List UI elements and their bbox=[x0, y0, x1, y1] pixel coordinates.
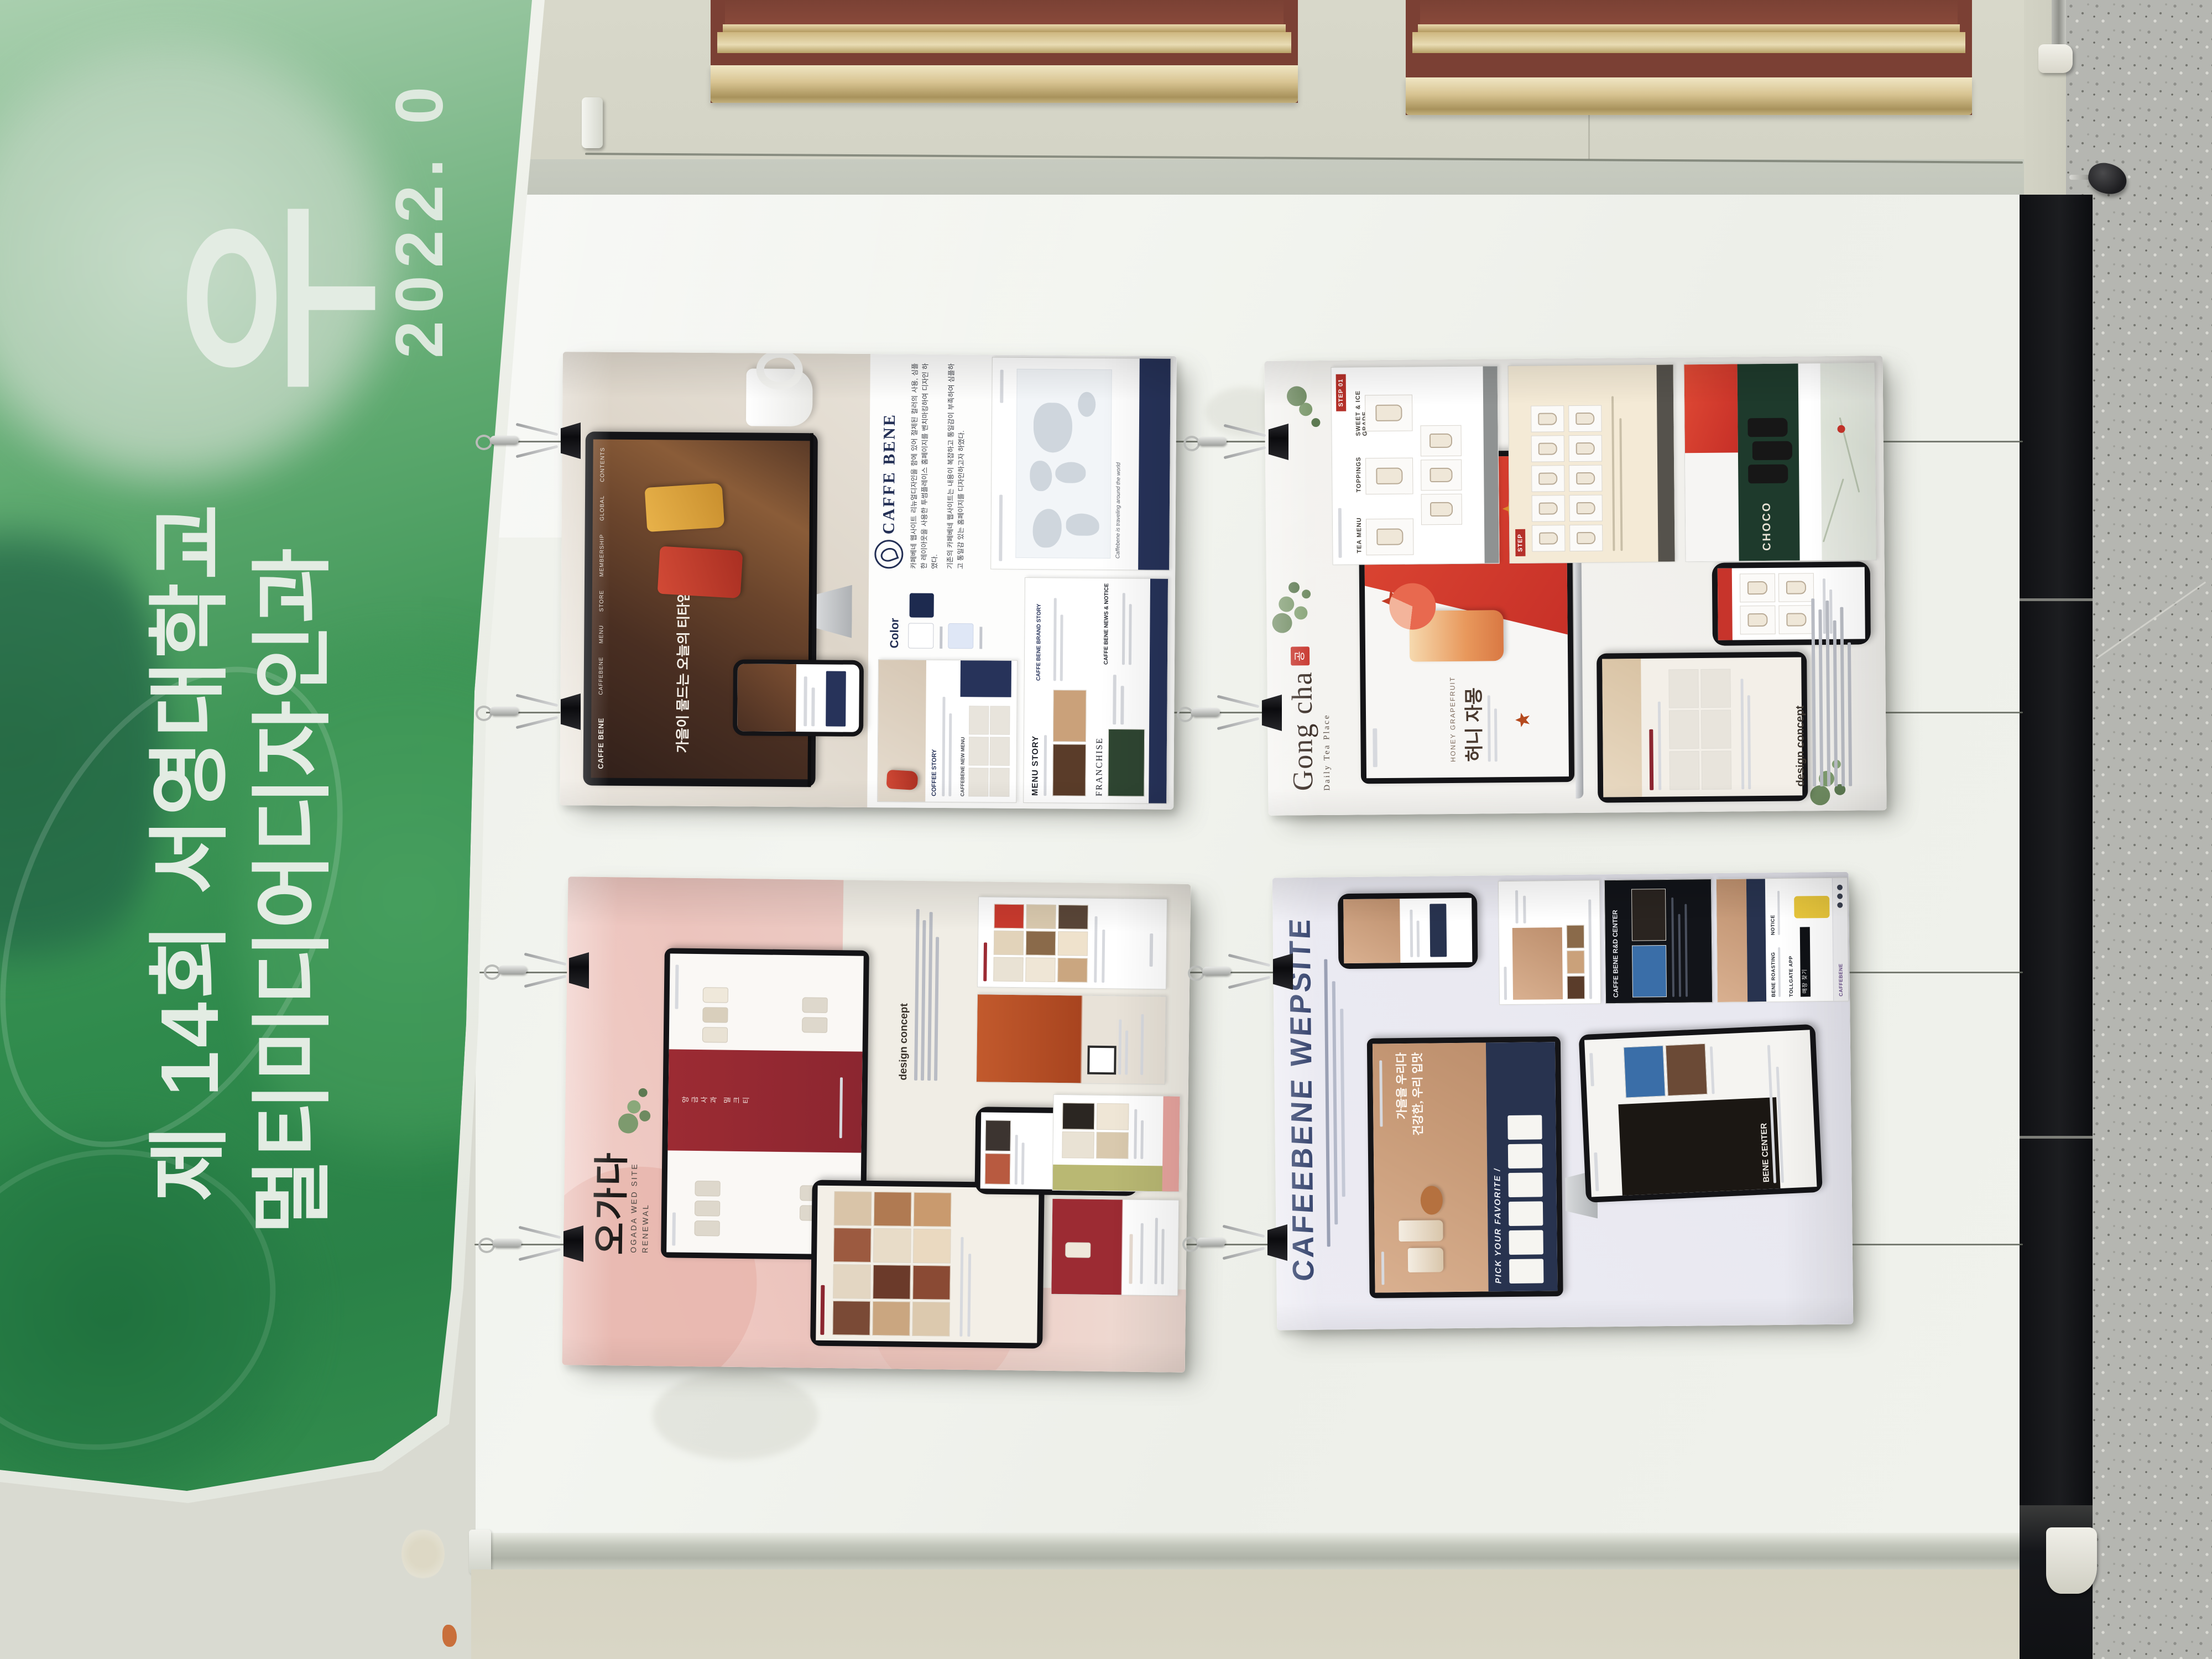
color-swatch-white bbox=[908, 623, 933, 649]
poster-cafeebene: CAFEEBENE WEPSITE 가을을 우리다 건강한, 우리 입맛 bbox=[1272, 872, 1854, 1331]
iphone-mockup bbox=[1338, 893, 1478, 969]
ipad-mockup: BENE CENTER bbox=[1579, 1024, 1823, 1203]
page-screenshot-hero bbox=[1498, 880, 1601, 1005]
plant-decoration bbox=[1810, 785, 1830, 805]
ipad-mockup bbox=[1597, 651, 1808, 802]
door-closer-bracket bbox=[2038, 44, 2073, 73]
binder-clip bbox=[1177, 691, 1282, 734]
nav-item: MEMBERSHIP bbox=[599, 534, 606, 577]
color-section: Color bbox=[888, 583, 980, 649]
coffee-mug bbox=[746, 368, 813, 426]
wall-gray-band bbox=[498, 159, 2024, 198]
wall-orange-chip bbox=[442, 1625, 457, 1647]
phone-hero bbox=[737, 664, 796, 732]
nav-item: CAFFEBENE bbox=[598, 657, 604, 695]
swatch-label-line bbox=[940, 627, 942, 649]
wire-anchor-bracket bbox=[582, 97, 603, 148]
page-screenshot-tea-menu: STEP bbox=[1508, 364, 1676, 564]
gongcha-wordmark: Gong cha bbox=[1286, 671, 1319, 791]
screen-logo: CAFFE BENE bbox=[597, 718, 606, 769]
nav-item: CONTENTS bbox=[599, 447, 606, 482]
poster-caffebene-content: CAFFE BENE CAFFEBENE MENU STORE MEMBERSH… bbox=[560, 352, 1177, 810]
wall-smudge bbox=[653, 1371, 818, 1460]
swatch-label-line bbox=[979, 627, 982, 649]
imac-stand bbox=[816, 585, 852, 638]
pick-your-favorite-band: PICK YOUR FAVORITE / bbox=[1485, 1042, 1557, 1291]
hero-red-panel: 앙금사과 밀크티 bbox=[667, 1049, 862, 1153]
page-footer: CAFFEBENE bbox=[1832, 878, 1848, 1001]
poster-gongcha: Gong cha공 Daily Tea Place HONEY GRAPEFRU… bbox=[1264, 356, 1886, 816]
red-drink-pouch bbox=[658, 546, 743, 599]
screen-hero: 가을을 우리다 건강한, 우리 입맛 bbox=[1373, 1042, 1488, 1292]
banner-event-line1: 제 14회 서영대학교 bbox=[123, 501, 242, 1201]
brand-block: CAFFE BENE 카페베네 웹사이트 리뉴얼디자인을 함에 있어 절제된 컬… bbox=[874, 358, 984, 569]
rnd-heading: CAFFE BENE R&D CENTER bbox=[1610, 910, 1620, 998]
color-heading: Color bbox=[888, 583, 902, 648]
nav-item: GLOBAL bbox=[599, 495, 606, 521]
map-section bbox=[1820, 363, 1876, 560]
binder-clip bbox=[476, 419, 581, 462]
binder-clip bbox=[1188, 950, 1293, 993]
lower-rail-endcap bbox=[469, 1530, 491, 1574]
baseboard-tile-gap bbox=[2020, 598, 2093, 601]
page-screenshot-menu-story: MENU STORY CAFFE BENE BRAND STORY FRANCH… bbox=[1023, 577, 1168, 804]
hero-line1: 가을을 우리다 bbox=[1395, 1052, 1408, 1119]
hero-title: 허니 자몽 bbox=[1459, 687, 1486, 762]
gongcha-logo-mark: 공 bbox=[1291, 646, 1310, 665]
lower-rail bbox=[471, 1533, 2025, 1569]
poster-gongcha-content: Gong cha공 Daily Tea Place HONEY GRAPEFRU… bbox=[1264, 356, 1886, 816]
store-find-bar: 매장 찾기 bbox=[1800, 927, 1811, 997]
binder-clip bbox=[478, 1222, 583, 1265]
gongcha-tagline: Daily Tea Place bbox=[1322, 646, 1332, 791]
nav-item: MENU bbox=[598, 625, 604, 644]
page-screenshot-choco-map: CHOCO bbox=[1684, 362, 1877, 562]
iphone-mockup bbox=[733, 659, 864, 737]
imac-mockup: 가을을 우리다 건강한, 우리 입맛 PICK YOUR FAVORITE / bbox=[1367, 1036, 1563, 1298]
binder-clip bbox=[476, 690, 581, 733]
ogada-subtitle-line2: RENEWAL bbox=[640, 1203, 650, 1253]
design-concept-block: design concept bbox=[1793, 587, 1856, 787]
ogada-subtitle: OGADA WED SITE RENEWAL bbox=[628, 1162, 652, 1253]
page-screenshot-order-steps: STEP 01 TEA MENU TOPPINGS SWEET & ICE GR… bbox=[1331, 366, 1500, 565]
caffebene-logo-icon bbox=[874, 540, 903, 568]
screen-hero-text: 가을이 물드는 오늘의 티타임 bbox=[674, 590, 694, 753]
ogada-title: 오가다 bbox=[582, 1150, 634, 1255]
ogada-subtitle-line1: OGADA WED SITE bbox=[629, 1162, 639, 1253]
screen-nav: CAFFEBENE MENU STORE MEMBERSHIP GLOBAL C… bbox=[598, 447, 606, 695]
banner-event-line2: 멀티미디어디자인과 bbox=[226, 547, 345, 1234]
binder-clip bbox=[484, 949, 589, 992]
wall-lower-beige bbox=[471, 1569, 2025, 1659]
poster-caffebene: CAFFE BENE CAFFEBENE MENU STORE MEMBERSH… bbox=[560, 352, 1177, 810]
bene-center-block: BENE CENTER bbox=[1618, 1097, 1780, 1196]
pick-heading: PICK YOUR FAVORITE / bbox=[1493, 1168, 1503, 1284]
door-hinge-bracket bbox=[2046, 1527, 2097, 1594]
design-concept-block: design concept bbox=[898, 898, 943, 1081]
banner-big-character: 우 bbox=[113, 201, 416, 394]
poster-cafeebene-content: CAFEEBENE WEPSITE 가을을 우리다 건강한, 우리 입맛 bbox=[1272, 872, 1854, 1331]
yellow-drink-pouch bbox=[645, 483, 725, 532]
tollgate-app-phone bbox=[1794, 896, 1829, 919]
picture-frame-1 bbox=[711, 0, 1298, 103]
design-concept-heading: design concept bbox=[898, 898, 912, 1080]
banner-date: 2022. 0 bbox=[380, 79, 458, 358]
maple-leaf bbox=[1515, 713, 1530, 727]
poster-ogada-content: 오가다 OGADA WED SITE RENEWAL 앙금사과 밀크티 bbox=[562, 877, 1191, 1373]
ipad-mockup bbox=[810, 1180, 1045, 1349]
black-baseboard bbox=[2020, 195, 2093, 1505]
color-swatch-lightblue bbox=[948, 623, 973, 649]
page-screenshot-rnd-center: CAFFE BENE R&D CENTER bbox=[1604, 879, 1713, 1004]
mockup-photo-area: CAFFE BENE CAFFEBENE MENU STORE MEMBERSH… bbox=[560, 352, 870, 807]
design-concept-heading: design concept bbox=[1793, 587, 1807, 786]
exhibition-photo: 우 2022. 0 제 14회 서영대학교 멀티미디어디자인과 CAFFE BE… bbox=[0, 0, 2212, 1659]
nav-item: STORE bbox=[599, 590, 605, 612]
hero-line2: 건강한, 우리 입맛 bbox=[1411, 1052, 1425, 1136]
poster-description-1: 카페베네 웹사이트 리뉴얼디자인을 함에 있어 절제된 컬러의 사용, 심플한 … bbox=[909, 363, 941, 569]
baseboard-tile-gap bbox=[2020, 1136, 2093, 1139]
plant-decoration bbox=[1272, 613, 1292, 633]
page-screenshot-promo bbox=[976, 994, 1166, 1084]
event-banner: 우 2022. 0 제 14회 서영대학교 멀티미디어디자인과 bbox=[0, 0, 553, 1515]
page-screenshot-home: BENE ROASTING NOTICE TOLLGATE APP 매장 찾기 … bbox=[1716, 878, 1849, 1003]
poster-ogada: 오가다 OGADA WED SITE RENEWAL 앙금사과 밀크티 bbox=[562, 877, 1191, 1373]
page-screenshot-coffee-story: COFFEE STORY CAFFEBENE NEW MENU bbox=[877, 659, 1018, 803]
page-screenshot-products bbox=[977, 896, 1167, 989]
wall-round-mark bbox=[401, 1528, 445, 1579]
page-screenshot-olive bbox=[1052, 1094, 1181, 1192]
binder-clip bbox=[1182, 1221, 1287, 1264]
plant-decoration bbox=[1287, 386, 1307, 406]
page-screenshot-hero bbox=[1051, 1198, 1179, 1296]
brand-wordmark: CAFFE BENE bbox=[880, 413, 900, 534]
color-swatch-navy bbox=[910, 593, 934, 617]
binder-clip bbox=[1183, 420, 1288, 463]
choco-section: CHOCO bbox=[1738, 363, 1800, 561]
picture-frame-2 bbox=[1406, 0, 1972, 115]
hero-subtitle: HONEY GRAPEFRUIT bbox=[1448, 676, 1457, 762]
poster-description-2: 기존의 카페베네 웹사이트는 내용이 복잡하고 통일감이 부족하여 심플하고 통… bbox=[945, 363, 967, 569]
page-screenshot-world-map: Caffebene is traveling around the world bbox=[990, 357, 1171, 571]
gongcha-brand-block: Gong cha공 Daily Tea Place bbox=[1286, 646, 1332, 791]
